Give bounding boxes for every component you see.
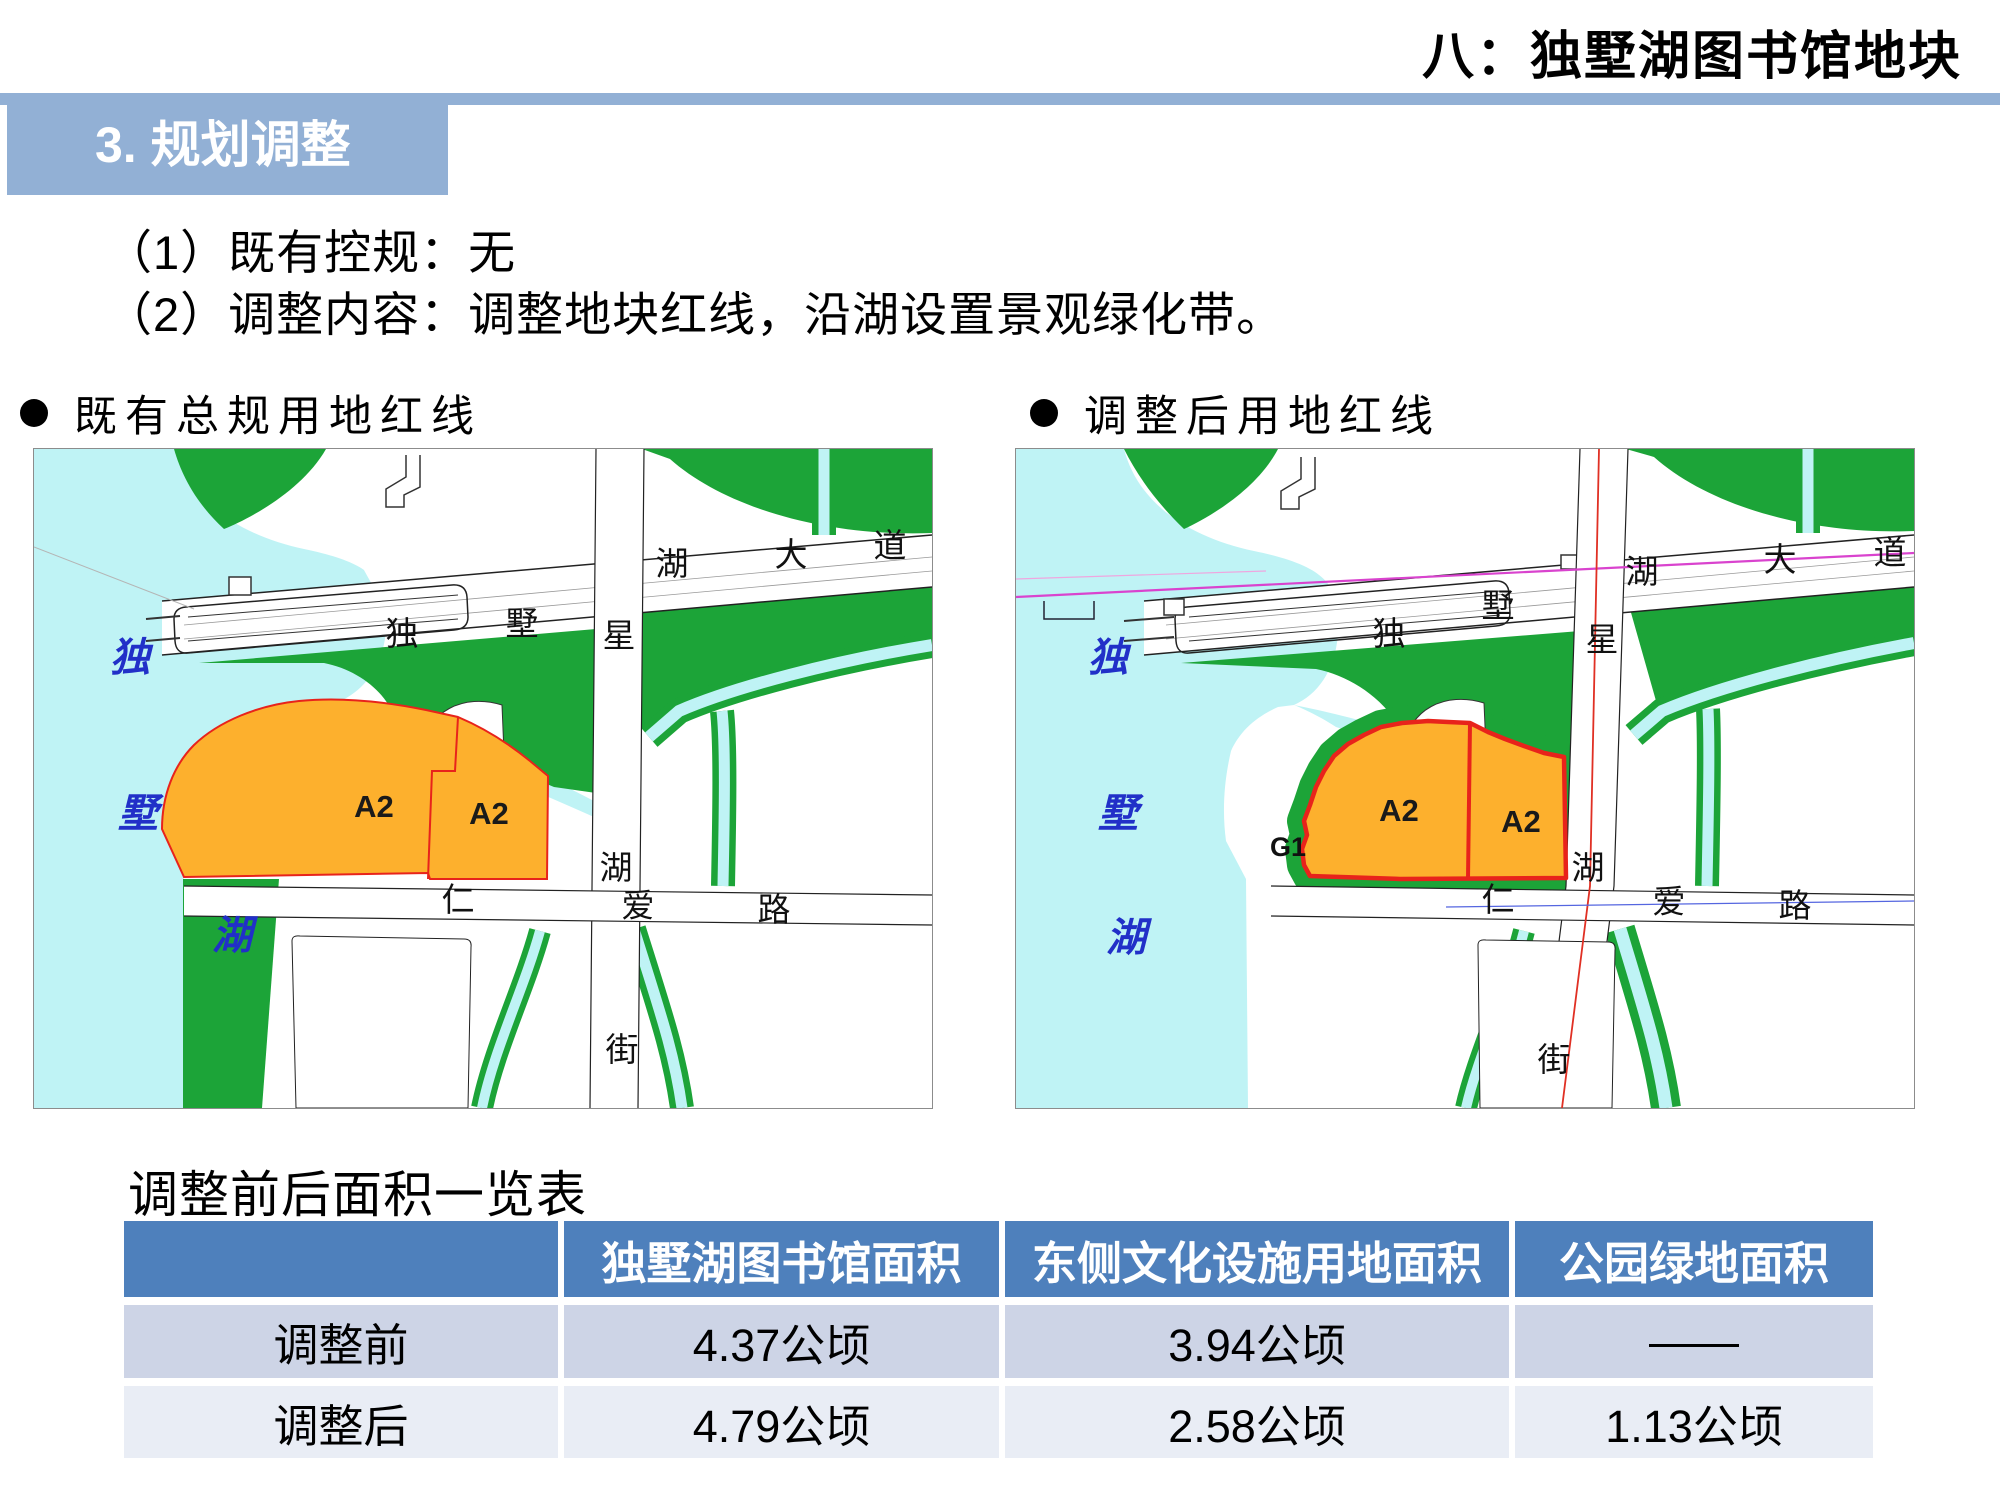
map-adjusted-plan: A2 A2 G1 独 墅 湖 大 道 星 湖 街 仁 爱 路 独 墅 湖: [1015, 448, 1915, 1109]
parcel-divider: [1468, 723, 1470, 879]
road-label: 街: [606, 1031, 639, 1068]
road-label: 道: [874, 527, 907, 564]
row-before-label: 调整前: [124, 1305, 558, 1378]
river-mid: [722, 711, 724, 886]
table-header-park-area: 公园绿地面积: [1515, 1221, 1873, 1297]
parcel-label: A2: [469, 796, 509, 831]
plot-below-renai: [292, 936, 471, 1108]
bullet-adjusted-redline: 调整后用地红线: [1030, 382, 1441, 444]
bullet-left-label: 既有总规用地红线: [74, 382, 482, 444]
lake-label: 墅: [118, 792, 164, 836]
road-label: 大: [775, 536, 808, 573]
road-label: 独: [386, 615, 419, 652]
table-header-library-area: 独墅湖图书馆面积: [564, 1221, 999, 1297]
parcel-label: A2: [1501, 804, 1541, 839]
lake-label: 墅: [1098, 792, 1144, 836]
row-before-library: 4.37公顷: [564, 1305, 999, 1378]
row-before-park: ——: [1515, 1305, 1873, 1378]
map-existing-plan-canvas: A2 A2 独 墅 湖 大 道 星 湖 街 仁 爱 路 独 墅 湖: [34, 449, 932, 1108]
green-parcel-label: G1: [1270, 832, 1306, 862]
row-after-culture: 2.58公顷: [1005, 1386, 1509, 1458]
river-mid: [1707, 709, 1709, 886]
parcel-label: A2: [354, 789, 394, 824]
row-after-label: 调整后: [124, 1386, 558, 1458]
table-header-empty: [124, 1221, 558, 1297]
lake-label: 湖: [212, 914, 258, 958]
bullet-icon: [20, 399, 48, 427]
lake-label: 独: [110, 636, 154, 680]
road-label: 仁: [442, 881, 475, 918]
bridge-block: [1164, 599, 1184, 615]
road-label: 墅: [506, 605, 539, 642]
area-comparison-table: 独墅湖图书馆面积 东侧文化设施用地面积 公园绿地面积 调整前 4.37公顷 3.…: [124, 1221, 1873, 1458]
road-label: 爱: [622, 887, 655, 924]
road-label: 湖: [1572, 849, 1605, 886]
bullet-right-label: 调整后用地红线: [1084, 382, 1441, 444]
road-label: 路: [758, 891, 791, 928]
road-label: 仁: [1482, 881, 1515, 918]
map-adjusted-plan-canvas: A2 A2 G1 独 墅 湖 大 道 星 湖 街 仁 爱 路 独 墅 湖: [1016, 449, 1914, 1108]
paragraph-existing-regulation: （1）既有控规：无: [105, 214, 516, 283]
lake-label: 独: [1088, 636, 1132, 680]
plot-below-renai: [1478, 940, 1615, 1108]
lake-label: 湖: [1106, 916, 1152, 960]
road-xinghu-street: [590, 449, 644, 1108]
bridge-block: [229, 577, 251, 595]
road-label: 湖: [656, 545, 689, 582]
table-header-culture-area: 东侧文化设施用地面积: [1005, 1221, 1509, 1297]
bullet-icon: [1030, 399, 1058, 427]
bullet-existing-redline: 既有总规用地红线: [20, 382, 482, 444]
table-title: 调整前后面积一览表: [128, 1155, 587, 1227]
row-after-park: 1.13公顷: [1515, 1386, 1873, 1458]
road-label: 道: [1874, 534, 1907, 571]
slide: 八：独墅湖图书馆地块 3. 规划调整 （1）既有控规：无 （2）调整内容：调整地…: [0, 0, 2000, 1500]
corner-title: 八：独墅湖图书馆地块: [1422, 14, 1962, 89]
road-label: 街: [1538, 1041, 1571, 1078]
road-label: 墅: [1482, 587, 1515, 624]
map-existing-plan: A2 A2 独 墅 湖 大 道 星 湖 街 仁 爱 路 独 墅 湖: [33, 448, 933, 1109]
row-after-library: 4.79公顷: [564, 1386, 999, 1458]
road-label: 大: [1764, 541, 1797, 578]
road-label: 独: [1373, 615, 1406, 652]
paragraph-adjustment-content: （2）调整内容：调整地块红线，沿湖设置景观绿化带。: [105, 276, 1284, 345]
parcel-label: A2: [1379, 793, 1419, 828]
row-before-culture: 3.94公顷: [1005, 1305, 1509, 1378]
road-label: 爱: [1653, 883, 1686, 920]
road-label: 星: [1586, 621, 1619, 658]
road-label: 湖: [600, 849, 633, 886]
section-title: 3. 规划调整: [95, 112, 448, 178]
road-label: 湖: [1626, 553, 1659, 590]
road-label: 路: [1779, 887, 1812, 924]
road-label: 星: [603, 617, 636, 654]
